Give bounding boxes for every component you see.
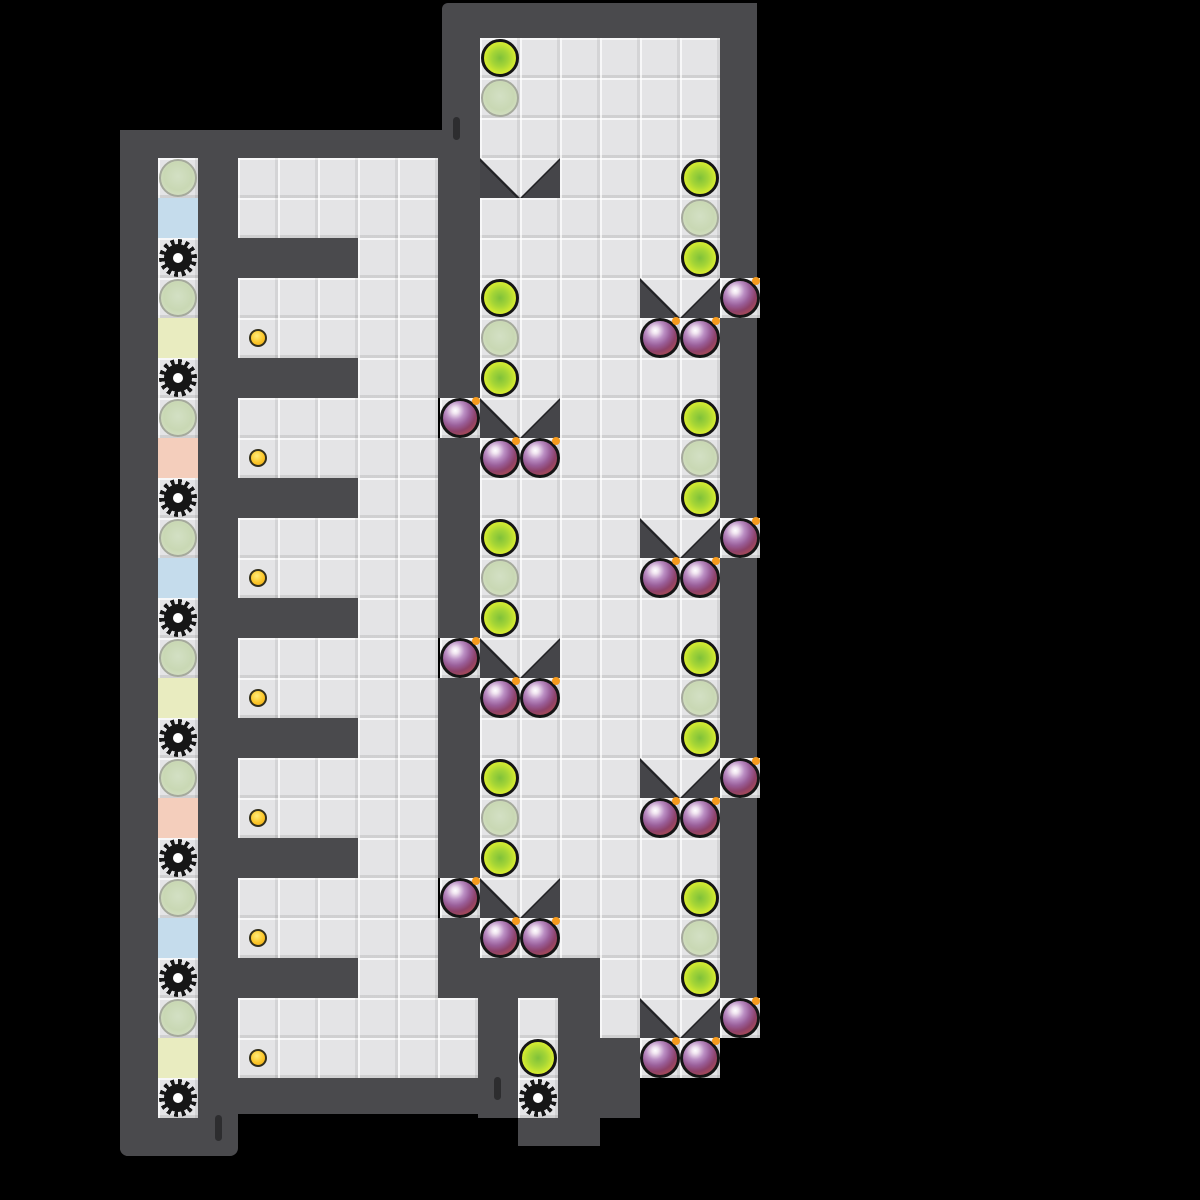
wall bbox=[598, 1038, 640, 1118]
bomb-fuse bbox=[552, 917, 560, 925]
color-tile bbox=[158, 438, 198, 478]
bright-orb bbox=[519, 1039, 557, 1077]
door-mark bbox=[215, 1115, 222, 1141]
color-tile bbox=[158, 678, 198, 718]
wall bbox=[442, 38, 480, 158]
gate-left-triangle bbox=[480, 398, 520, 438]
wall bbox=[720, 558, 757, 758]
gate-right-triangle bbox=[520, 158, 560, 198]
gear-trap-icon bbox=[159, 719, 197, 757]
gear-trap-icon bbox=[159, 959, 197, 997]
gear-trap-icon bbox=[159, 1079, 197, 1117]
gate-left-triangle bbox=[480, 158, 520, 198]
bomb-fuse bbox=[472, 877, 480, 885]
gear-trap-icon bbox=[519, 1079, 557, 1117]
one-way-gate-icon bbox=[640, 278, 720, 318]
color-tile bbox=[158, 798, 198, 838]
bright-orb bbox=[681, 399, 719, 437]
wall bbox=[238, 958, 358, 998]
faded-orb bbox=[159, 279, 197, 317]
one-way-gate-icon bbox=[480, 878, 560, 918]
bomb-icon bbox=[480, 438, 520, 478]
coin-icon bbox=[249, 329, 267, 347]
faded-orb bbox=[159, 879, 197, 917]
bright-orb bbox=[481, 39, 519, 77]
faded-orb bbox=[681, 679, 719, 717]
faded-orb bbox=[681, 919, 719, 957]
door-mark bbox=[494, 1077, 501, 1100]
bright-orb bbox=[481, 519, 519, 557]
faded-orb bbox=[681, 439, 719, 477]
bomb-fuse bbox=[552, 677, 560, 685]
wall bbox=[558, 958, 600, 1118]
coin-icon bbox=[249, 1049, 267, 1067]
wall bbox=[238, 718, 358, 758]
bomb-fuse bbox=[712, 557, 720, 565]
gate-right-triangle bbox=[680, 278, 720, 318]
bomb-fuse bbox=[512, 437, 520, 445]
coin-icon bbox=[249, 569, 267, 587]
bomb-fuse bbox=[752, 517, 760, 525]
wall bbox=[238, 358, 358, 398]
bomb-fuse bbox=[752, 277, 760, 285]
bomb-icon bbox=[680, 558, 720, 598]
coin-icon bbox=[249, 929, 267, 947]
wall bbox=[518, 958, 558, 998]
gate-left-triangle bbox=[480, 878, 520, 918]
bright-orb bbox=[681, 479, 719, 517]
coin-icon bbox=[249, 449, 267, 467]
wall bbox=[518, 1118, 600, 1146]
one-way-gate-icon bbox=[640, 998, 720, 1038]
bright-orb bbox=[681, 959, 719, 997]
bomb-icon bbox=[680, 318, 720, 358]
bomb-icon bbox=[480, 918, 520, 958]
gate-left-triangle bbox=[640, 758, 680, 798]
faded-orb bbox=[681, 199, 719, 237]
wall bbox=[438, 158, 480, 398]
wall bbox=[238, 478, 358, 518]
faded-orb bbox=[159, 759, 197, 797]
bright-orb bbox=[681, 879, 719, 917]
bomb-fuse bbox=[512, 677, 520, 685]
bomb-fuse bbox=[512, 917, 520, 925]
coin-icon bbox=[249, 809, 267, 827]
bomb-fuse bbox=[672, 797, 680, 805]
gear-trap-icon bbox=[159, 239, 197, 277]
bomb-fuse bbox=[752, 997, 760, 1005]
wall bbox=[720, 3, 757, 278]
bomb-icon bbox=[720, 758, 760, 798]
bomb-icon bbox=[440, 638, 480, 678]
bomb-icon bbox=[480, 678, 520, 718]
gear-trap-icon bbox=[159, 599, 197, 637]
gate-right-triangle bbox=[680, 758, 720, 798]
game-canvas[interactable] bbox=[0, 0, 1200, 1200]
gear-trap-icon bbox=[159, 839, 197, 877]
gate-right-triangle bbox=[680, 518, 720, 558]
color-tile bbox=[158, 558, 198, 598]
bomb-icon bbox=[640, 318, 680, 358]
gate-right-triangle bbox=[520, 398, 560, 438]
faded-orb bbox=[481, 319, 519, 357]
bomb-icon bbox=[720, 998, 760, 1038]
wall bbox=[442, 3, 757, 38]
wall bbox=[238, 1078, 478, 1114]
bright-orb bbox=[481, 359, 519, 397]
gate-left-triangle bbox=[640, 998, 680, 1038]
gear-trap-icon bbox=[159, 359, 197, 397]
bomb-fuse bbox=[672, 557, 680, 565]
bomb-icon bbox=[640, 1038, 680, 1078]
bright-orb bbox=[481, 839, 519, 877]
wall bbox=[238, 838, 358, 878]
coin-icon bbox=[249, 689, 267, 707]
bomb-fuse bbox=[712, 1037, 720, 1045]
bright-orb bbox=[681, 639, 719, 677]
faded-orb bbox=[159, 639, 197, 677]
one-way-gate-icon bbox=[480, 398, 560, 438]
one-way-gate-icon bbox=[640, 518, 720, 558]
bomb-fuse bbox=[712, 317, 720, 325]
wall bbox=[120, 130, 480, 158]
faded-orb bbox=[481, 799, 519, 837]
gear-trap-icon bbox=[159, 479, 197, 517]
faded-orb bbox=[159, 159, 197, 197]
wall bbox=[198, 158, 238, 1118]
bomb-fuse bbox=[472, 637, 480, 645]
bright-orb bbox=[481, 599, 519, 637]
faded-orb bbox=[159, 519, 197, 557]
faded-orb bbox=[481, 559, 519, 597]
bomb-icon bbox=[440, 398, 480, 438]
bright-orb bbox=[681, 159, 719, 197]
bomb-icon bbox=[720, 278, 760, 318]
wall bbox=[238, 238, 358, 278]
color-tile bbox=[158, 318, 198, 358]
one-way-gate-icon bbox=[640, 758, 720, 798]
bright-orb bbox=[681, 239, 719, 277]
wall bbox=[238, 598, 358, 638]
gate-left-triangle bbox=[480, 638, 520, 678]
gate-left-triangle bbox=[640, 278, 680, 318]
faded-orb bbox=[159, 999, 197, 1037]
gate-right-triangle bbox=[520, 638, 560, 678]
bomb-fuse bbox=[712, 797, 720, 805]
wall bbox=[438, 438, 480, 638]
bomb-icon bbox=[680, 1038, 720, 1078]
bomb-fuse bbox=[752, 757, 760, 765]
faded-orb bbox=[481, 79, 519, 117]
bomb-icon bbox=[520, 438, 560, 478]
one-way-gate-icon bbox=[480, 158, 560, 198]
bright-orb bbox=[681, 719, 719, 757]
gate-right-triangle bbox=[680, 998, 720, 1038]
door-mark bbox=[453, 117, 460, 140]
bomb-fuse bbox=[552, 437, 560, 445]
bright-orb bbox=[481, 759, 519, 797]
one-way-gate-icon bbox=[480, 638, 560, 678]
bright-orb bbox=[481, 279, 519, 317]
wall bbox=[120, 130, 158, 1156]
wall bbox=[438, 678, 480, 878]
gate-left-triangle bbox=[640, 518, 680, 558]
wall bbox=[720, 798, 757, 998]
color-tile bbox=[158, 1038, 198, 1078]
bomb-icon bbox=[440, 878, 480, 918]
bomb-fuse bbox=[672, 1037, 680, 1045]
faded-orb bbox=[159, 399, 197, 437]
gate-right-triangle bbox=[520, 878, 560, 918]
bomb-icon bbox=[520, 678, 560, 718]
bomb-fuse bbox=[472, 397, 480, 405]
floor bbox=[438, 998, 478, 1078]
bomb-icon bbox=[720, 518, 760, 558]
bomb-icon bbox=[640, 798, 680, 838]
wall bbox=[438, 918, 480, 998]
bomb-icon bbox=[680, 798, 720, 838]
wall bbox=[720, 318, 757, 518]
color-tile bbox=[158, 918, 198, 958]
bomb-icon bbox=[520, 918, 560, 958]
bomb-icon bbox=[640, 558, 680, 598]
color-tile bbox=[158, 198, 198, 238]
bomb-fuse bbox=[672, 317, 680, 325]
